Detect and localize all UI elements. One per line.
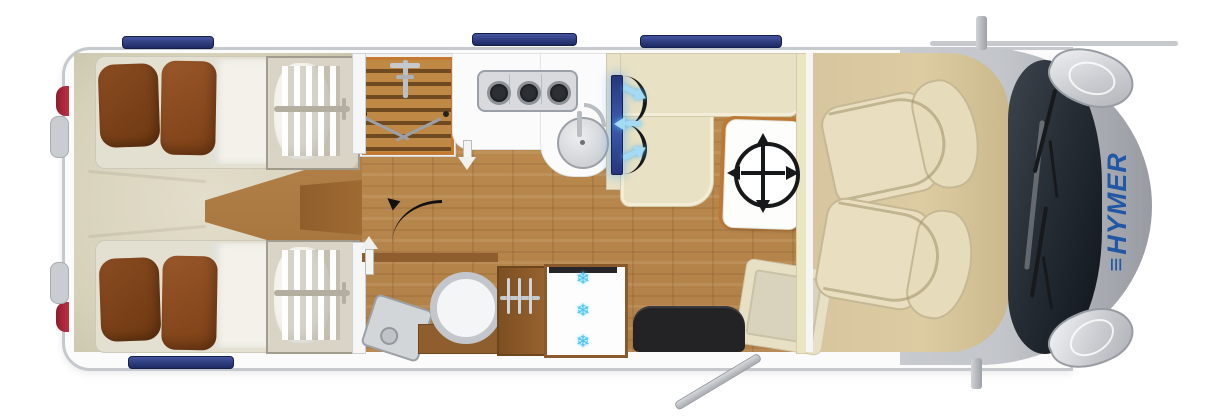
- window: [128, 356, 234, 369]
- pillow: [161, 256, 218, 351]
- burner: [487, 81, 511, 105]
- burner: [517, 81, 541, 105]
- bed-extension-rail: [274, 106, 350, 112]
- table-arrowhead-right: [786, 166, 799, 180]
- wardrobe: [497, 266, 546, 356]
- refrigerator-snowflakes: ❄ ❄ ❄: [548, 270, 618, 350]
- hymer-logo-mark-icon: ≡: [1103, 257, 1131, 272]
- window: [640, 35, 782, 48]
- taillight: [56, 86, 69, 116]
- pillow: [160, 61, 217, 156]
- bed-extension-cross: [342, 98, 346, 120]
- hymer-logo-text: HYMER: [1102, 152, 1133, 255]
- bed-extension-rail: [274, 290, 350, 296]
- snowflake-icon: ❄: [576, 333, 590, 350]
- table-arrowhead-down: [756, 200, 770, 213]
- entrance-mat: [633, 306, 745, 352]
- toilet: [430, 272, 502, 344]
- bed-extension-cross: [342, 282, 346, 304]
- table-arrowhead-left: [727, 166, 740, 180]
- burner: [547, 81, 571, 105]
- cab-partition-wall: [806, 53, 813, 352]
- table-arrow-horizontal: [741, 171, 785, 175]
- headlight-lens: [1063, 311, 1121, 364]
- shower-door-knob: [443, 111, 449, 117]
- taillight: [56, 302, 69, 332]
- washbasin-tap: [378, 325, 401, 348]
- window: [122, 36, 214, 49]
- gas-hob: [477, 70, 578, 112]
- shower-fixture-bar: [390, 63, 420, 68]
- walkway-arrow-down-icon: [458, 140, 476, 170]
- hymer-logo: ≡ HYMER: [1102, 132, 1132, 292]
- bed-slats: [266, 240, 360, 354]
- window: [472, 33, 577, 46]
- snowflake-icon: ❄: [576, 270, 590, 287]
- shower-handle: [396, 75, 414, 79]
- wall: [352, 53, 366, 154]
- roof-rail: [930, 41, 1178, 46]
- back-cushion: [99, 257, 162, 342]
- hob-divider: [541, 74, 542, 104]
- bed-slats: [266, 56, 360, 170]
- back-cushion: [98, 63, 161, 148]
- tv-swivel-arrow-icon: [614, 114, 644, 134]
- bumper-pad: [50, 116, 69, 158]
- clothes-hanger: [518, 278, 521, 314]
- clothes-hanger: [507, 278, 510, 314]
- snowflake-icon: ❄: [576, 302, 590, 319]
- faucet: [577, 111, 582, 137]
- motorhome-floorplan: ❄ ❄ ❄ ≡ HYMER: [0, 0, 1207, 420]
- sink-drain: [580, 140, 585, 145]
- bedroom-step: [300, 180, 362, 235]
- side-mirror: [976, 16, 987, 50]
- side-mirror: [971, 358, 982, 389]
- clothes-hanger: [529, 278, 532, 314]
- duvet: [212, 243, 270, 348]
- bumper-pad: [50, 262, 69, 304]
- walkway-arrow-up-icon: [360, 236, 378, 276]
- table-arrowhead-up: [756, 133, 770, 146]
- toilet-room-wall: [362, 253, 498, 262]
- duvet: [212, 59, 270, 164]
- headlight-lens: [1064, 56, 1119, 100]
